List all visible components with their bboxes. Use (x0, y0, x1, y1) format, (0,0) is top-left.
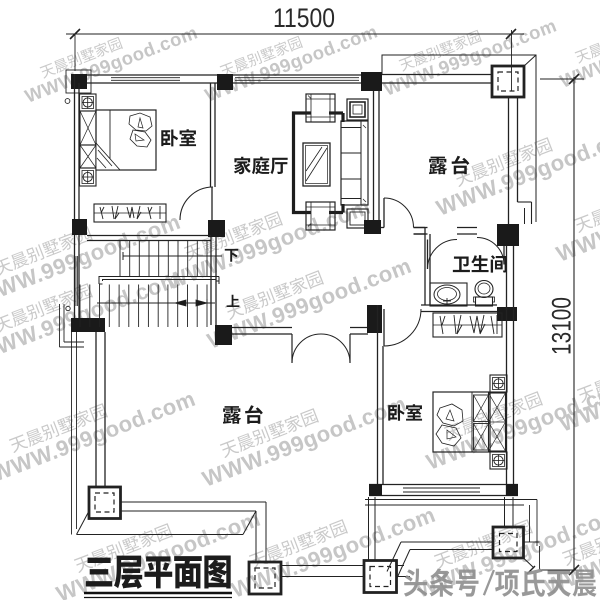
svg-text:13100: 13100 (547, 297, 577, 355)
svg-text:11500: 11500 (273, 3, 335, 33)
